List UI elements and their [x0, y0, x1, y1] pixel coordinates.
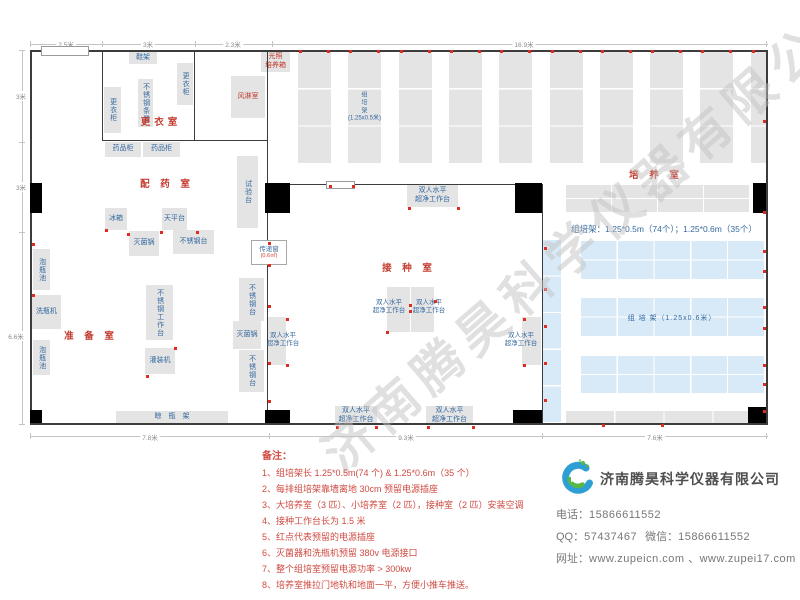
power-socket-dot	[528, 50, 531, 53]
power-socket-dot	[408, 207, 411, 210]
wall	[102, 140, 268, 141]
power-socket-dot	[651, 50, 654, 53]
tissue-culture-rack-strip	[298, 52, 331, 164]
power-socket-dot	[752, 50, 755, 53]
power-socket-dot	[763, 410, 766, 413]
steel-table-3: 不锈钢台	[239, 350, 264, 392]
power-socket-dot	[146, 375, 149, 378]
steel-table-2: 不锈钢台	[239, 278, 264, 321]
power-socket-dot	[336, 426, 339, 429]
power-socket-dot	[127, 233, 130, 236]
power-socket-dot	[763, 270, 766, 273]
power-socket-dot	[268, 362, 271, 365]
power-socket-dot	[579, 50, 582, 53]
dimension-label: 7.8米	[140, 432, 160, 442]
power-socket-dot	[160, 231, 163, 234]
structural-column	[513, 410, 542, 423]
company-card: TH 济南腾昊科学仪器有限公司 电话：15866611552QQ：5743746…	[556, 458, 786, 566]
dimension-line	[195, 41, 196, 47]
room-label-medicine: 配 药 室	[140, 176, 194, 190]
tissue-culture-rack-strip	[700, 52, 733, 164]
air-shower-room: 风淋室	[231, 76, 265, 118]
power-socket-dot	[196, 231, 199, 234]
wall	[102, 50, 103, 141]
pass-window-size: (0.6㎡)	[261, 253, 278, 259]
wall	[194, 50, 195, 141]
logo-th-text: TH	[569, 474, 581, 484]
contact-value: www.zupeicn.com 、www.zupei17.com	[589, 553, 796, 565]
wall	[542, 184, 543, 425]
dimension-line	[19, 232, 25, 233]
clean-bench-center-2-label: 双人水平 超净工作台	[413, 299, 446, 315]
dimension-line	[30, 41, 31, 47]
bottle-washer: 洗瓶机	[32, 295, 61, 329]
contact-label: QQ：	[556, 531, 584, 543]
clean-bench-left-label: 双人水平 超净工作台	[267, 332, 300, 348]
rack-spec-note: 组培架：1.25*0.5m（74个）；1.25*0.6m（35个）	[571, 223, 757, 235]
room-label-culture: 培 养 室	[629, 167, 683, 181]
dimension-label: 9.3米	[396, 432, 416, 442]
locker-right: 更衣柜	[177, 63, 193, 105]
wall	[268, 184, 543, 185]
power-socket-dot	[268, 400, 271, 403]
dimension-line	[19, 424, 25, 425]
contact-label: 网址：	[556, 553, 589, 565]
medicine-cabinet-2: 药品柜	[143, 142, 180, 157]
power-socket-dot	[286, 318, 289, 321]
notes-title: 备注：	[262, 447, 552, 462]
power-socket-dot	[544, 325, 547, 328]
power-socket-dot	[701, 50, 704, 53]
power-socket-dot	[602, 424, 605, 427]
power-socket-dot	[763, 250, 766, 253]
clean-bench-center-1-label: 双人水平 超净工作台	[373, 299, 406, 315]
power-socket-dot	[763, 120, 766, 123]
clean-bench-right-label: 双人水平 超净工作台	[505, 332, 538, 348]
power-socket-dot	[544, 362, 547, 365]
contact-line: 网址：www.zupeicn.com 、www.zupei17.com	[556, 550, 786, 566]
tissue-culture-rack-strip	[499, 52, 532, 164]
contact-label: 微信：	[645, 531, 678, 543]
room-label-changing: 更衣室	[141, 114, 182, 128]
rack-gray-upper	[566, 185, 750, 213]
dimension-line	[19, 142, 25, 143]
room-label-prep: 准 备 室	[64, 328, 118, 342]
dimension-line	[19, 50, 25, 51]
power-socket-dot	[268, 305, 271, 308]
wall	[30, 50, 768, 52]
sterilizer-2: 灭菌锅	[233, 321, 261, 349]
power-socket-dot	[32, 243, 35, 246]
dimension-line	[102, 41, 103, 47]
contact-value: 15866611552	[589, 509, 661, 521]
power-socket-dot	[400, 50, 403, 53]
notes-list: 1、组培架长 1.25*0.5m(74 个) & 1.25*0.6m（35 个）…	[262, 465, 552, 593]
structural-column	[515, 183, 542, 213]
dimension-line	[22, 50, 23, 425]
company-header: TH 济南腾昊科学仪器有限公司	[556, 458, 786, 500]
dimension-line	[30, 433, 31, 439]
soak-pool-2: 泡瓶池	[33, 340, 50, 375]
note-item: 2、每排组培架靠墙离地 30cm 预留电源插座	[262, 481, 552, 497]
room-label-inoculation: 接 种 室	[382, 260, 436, 274]
power-socket-dot	[450, 50, 453, 53]
power-socket-dot	[409, 310, 412, 313]
steel-table-1: 不锈钢台	[173, 230, 214, 254]
power-socket-dot	[428, 50, 431, 53]
locker-left: 更衣柜	[104, 87, 121, 133]
fridge: 冰箱	[105, 208, 127, 230]
power-socket-dot	[327, 50, 330, 53]
medicine-cabinet-1: 药品柜	[105, 142, 141, 157]
structural-column	[30, 183, 42, 213]
rack-gray-bottom	[566, 411, 763, 423]
contact-label: 电话：	[556, 509, 589, 521]
rack-blue-band-1	[581, 241, 765, 280]
power-socket-dot	[434, 300, 437, 303]
dimension-line	[269, 433, 270, 439]
dimension-line	[766, 433, 767, 439]
floor-plan: 鞋架更衣柜不锈钢条凳更衣柜风淋室药品柜药品柜试验台冰箱天平台泡瓶池洗瓶机泡瓶池灭…	[0, 0, 800, 450]
rack-blue-label: 组 培 架（1.25x0.6米）	[628, 313, 717, 323]
structural-column	[753, 183, 766, 213]
power-socket-dot	[377, 50, 380, 53]
wall	[766, 50, 768, 425]
sterilizer-1: 灭菌锅	[129, 231, 159, 256]
power-socket-dot	[763, 383, 766, 386]
power-socket-dot	[329, 185, 332, 188]
power-socket-dot	[551, 50, 554, 53]
wall	[30, 50, 32, 425]
power-socket-dot	[427, 426, 430, 429]
power-socket-dot	[268, 264, 271, 267]
dimension-label: 3米	[14, 182, 28, 192]
steel-worktable: 不锈钢工作台	[146, 285, 173, 340]
structural-column	[265, 410, 290, 423]
note-item: 1、组培架长 1.25*0.5m(74 个) & 1.25*0.6m（35 个）	[262, 465, 552, 481]
note-item: 6、灭菌器和洗瓶机预留 380v 电源接口	[262, 545, 552, 561]
clean-bench-top: 双人水平 超净工作台	[407, 184, 458, 207]
contact-value: 57437467	[584, 531, 637, 543]
note-item: 4、接种工作台长为 1.5 米	[262, 513, 552, 529]
floor-plan-page: 鞋架更衣柜不锈钢条凳更衣柜风淋室药品柜药品柜试验台冰箱天平台泡瓶池洗瓶机泡瓶池灭…	[0, 0, 800, 600]
tissue-culture-rack-strip	[600, 52, 633, 164]
pass-window-label: 传递窗	[259, 246, 279, 253]
power-socket-dot	[286, 364, 289, 367]
dimension-label: 3米	[14, 91, 28, 101]
dimension-line	[766, 41, 767, 47]
power-socket-dot	[661, 424, 664, 427]
power-socket-dot	[174, 347, 177, 350]
note-item: 7、整个组培室预留电源功率 > 300kw	[262, 561, 552, 577]
filling-machine: 灌装机	[145, 348, 175, 374]
power-socket-dot	[352, 185, 355, 188]
notes-section: 备注： 1、组培架长 1.25*0.5m(74 个) & 1.25*0.6m（3…	[262, 447, 552, 593]
dimension-label: 2.3米	[223, 39, 243, 49]
light-incubator: 光照 培养箱	[261, 51, 290, 72]
wall	[267, 50, 268, 425]
power-socket-dot	[409, 304, 412, 307]
door-opening	[41, 46, 89, 56]
test-bench: 试验台	[237, 156, 258, 228]
tissue-culture-rack-strip	[650, 52, 683, 164]
power-socket-dot	[679, 50, 682, 53]
note-item: 3、大培养室（3 匹）、小培养室（2 匹），接种室（2 匹）安装空调	[262, 497, 552, 513]
power-socket-dot	[349, 50, 352, 53]
contact-value: 15866611552	[678, 531, 750, 543]
wall	[30, 423, 768, 425]
power-socket-dot	[601, 50, 604, 53]
tissue-culture-rack-strip	[751, 52, 766, 164]
rack-blue-vstrip	[543, 240, 561, 423]
power-socket-dot	[629, 50, 632, 53]
tissue-culture-rack-strip: 组 培 架 (1.25x0.5米)	[348, 52, 381, 164]
power-socket-dot	[544, 288, 547, 291]
company-name: 济南腾昊科学仪器有限公司	[600, 469, 780, 489]
power-socket-dot	[375, 426, 378, 429]
power-socket-dot	[544, 247, 547, 250]
note-item: 5、红点代表预留的电源插座	[262, 529, 552, 545]
contact-lines: 电话：15866611552QQ：57437467微信：15866611552网…	[556, 506, 786, 566]
dimension-label: 7.6米	[645, 432, 665, 442]
power-socket-dot	[32, 294, 35, 297]
structural-column	[30, 410, 42, 423]
power-socket-dot	[763, 211, 766, 214]
balance-table: 天平台	[162, 208, 187, 230]
power-socket-dot	[386, 331, 389, 334]
structural-column	[265, 183, 290, 213]
tissue-culture-rack-strip	[449, 52, 482, 164]
power-socket-dot	[763, 364, 766, 367]
power-socket-dot	[544, 399, 547, 402]
power-socket-dot	[763, 327, 766, 330]
power-socket-dot	[729, 50, 732, 53]
power-socket-dot	[523, 364, 526, 367]
tissue-culture-rack-strip	[399, 52, 432, 164]
power-socket-dot	[105, 229, 108, 232]
dimension-label: 16.9米	[512, 39, 535, 49]
dimension-line	[272, 41, 273, 47]
dimension-label: 6.6米	[6, 331, 26, 341]
rack-strip-label: 组 培 架 (1.25x0.5米)	[335, 92, 395, 123]
power-socket-dot	[500, 50, 503, 53]
power-socket-dot	[763, 306, 766, 309]
tissue-culture-rack-strip	[550, 52, 583, 164]
note-item: 8、培养室推拉门地轨和地面一平，方便小推车推送。	[262, 577, 552, 593]
power-socket-dot	[472, 426, 475, 429]
company-logo-icon: TH	[556, 458, 596, 500]
contact-line: 电话：15866611552	[556, 506, 786, 522]
shoe-rack: 鞋架	[129, 52, 157, 64]
dimension-line	[542, 433, 543, 439]
power-socket-dot	[523, 318, 526, 321]
power-socket-dot	[478, 50, 481, 53]
rack-blue-band-3	[581, 356, 765, 394]
power-socket-dot	[299, 50, 302, 53]
dimension-label: 3米	[141, 39, 155, 49]
power-socket-dot	[268, 242, 271, 245]
soak-pool-1: 泡瓶池	[33, 249, 50, 290]
power-socket-dot	[457, 207, 460, 210]
contact-line: QQ：57437467微信：15866611552	[556, 528, 786, 544]
